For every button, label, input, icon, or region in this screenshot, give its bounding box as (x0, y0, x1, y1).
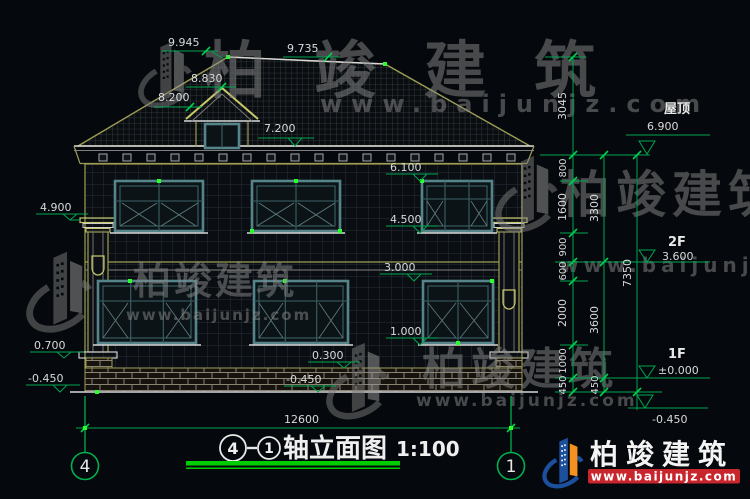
level-base-text: 0.700 (34, 339, 66, 352)
width-dim-text: 12600 (284, 413, 319, 426)
chain-b-3600: 3600 (588, 306, 601, 334)
watermark-text: 柏竣建筑 (133, 259, 297, 303)
chain-a-1600: 1600 (556, 193, 569, 221)
eave-band (74, 146, 534, 164)
dim-ridge-text: 9.945 (168, 36, 200, 49)
axis-1-number: 1 (506, 457, 517, 477)
level-2f-head-text: 6.100 (390, 161, 422, 174)
title-axis-4: 4 (227, 439, 238, 458)
title-name: 轴立面图 (283, 433, 387, 464)
chain-a-450: 450 (558, 375, 569, 394)
watermark-text: 柏竣建筑 (422, 344, 618, 395)
dim-dormer-eave-text: 8.200 (158, 91, 190, 104)
axis-4-number: 4 (80, 457, 91, 477)
level-base-left: 0.700 (30, 339, 84, 358)
watermark-url: www.baijunjz.com (320, 90, 709, 118)
roof-level-value: 6.900 (647, 120, 679, 133)
f2-level-name: 2F (668, 235, 686, 250)
watermark-url: www.baijunjz.com (126, 306, 311, 324)
drawing-title: 4 1 轴立面图 1:100 (186, 433, 460, 469)
right-ground-value: -0.450 (652, 413, 687, 426)
level-capital-left: 4.900 (36, 201, 88, 220)
f1-level-name: 1F (668, 347, 686, 362)
level-plinth-text: 0.300 (312, 349, 344, 362)
title-scale: 1:100 (396, 437, 460, 461)
level-ground-left-text: -0.450 (28, 372, 63, 385)
title-underline-thick (186, 461, 400, 466)
window-2f-right (417, 181, 497, 233)
title-axis-1: 1 (264, 441, 274, 457)
watermark-url: www.baijunjz.com (416, 391, 638, 411)
chain-a-600: 600 (558, 261, 569, 280)
window-1f-right (418, 281, 498, 345)
level-2f-sill-text: 4.500 (390, 213, 422, 226)
level-capital-text: 4.900 (40, 201, 72, 214)
level-ground-center-text: -0.450 (286, 373, 321, 386)
brand-name: 柏竣建筑 (590, 438, 734, 471)
window-2f-left (110, 181, 208, 233)
f2-level-value: 3.600 (662, 250, 694, 263)
chain-b-3300: 3300 (588, 194, 601, 222)
f1-level-value: ±0.000 (658, 364, 699, 377)
chain-a-2000: 2000 (556, 299, 569, 327)
level-ground-left: -0.450 (26, 372, 80, 392)
chain-a-3045: 3045 (556, 92, 569, 120)
chain-b-450: 450 (590, 375, 601, 394)
watermark-url: www.baijunjz.com (560, 253, 750, 277)
level-1f-head-text: 3.000 (384, 261, 416, 274)
cad-canvas: 柏竣建筑 www.baijunjz.com 柏竣建筑 www.baijunjz.… (0, 0, 750, 499)
chain-a-1000: 1000 (558, 348, 569, 373)
level-1f-sill-text: 1.000 (390, 325, 422, 338)
window-2f-center (247, 181, 345, 233)
roof-level-name: 屋顶 (664, 102, 690, 117)
elevation-drawing: 柏竣建筑 www.baijunjz.com 柏竣建筑 www.baijunjz.… (0, 0, 750, 499)
level-eave-text: 7.200 (264, 122, 296, 135)
brand-url: www.baijunjz.com (591, 470, 738, 484)
title-underline-thin (186, 468, 400, 470)
brand-logo-icon (539, 438, 588, 493)
chain-a-800: 800 (558, 158, 569, 177)
chain-c-7350: 7350 (621, 259, 634, 287)
dim-ridge-right-text: 9.735 (287, 42, 319, 55)
chain-a-900: 900 (558, 237, 569, 256)
brand-logo: 柏竣建筑 www.baijunjz.com (539, 438, 740, 493)
dim-dormer-ridge-text: 8.830 (191, 72, 223, 85)
